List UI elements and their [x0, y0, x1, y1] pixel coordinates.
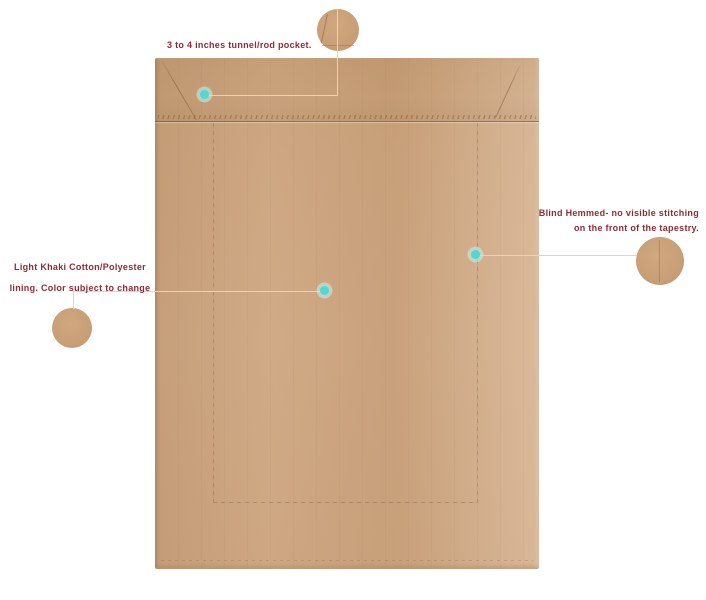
lining-left-seam [213, 123, 214, 502]
blind-hem-label-line2: on the front of the tapestry. [539, 221, 699, 236]
rod-pocket-label-text: 3 to 4 inches tunnel/rod pocket. [167, 40, 312, 50]
pocket-zigzag-stitch [158, 115, 536, 119]
lining-bottom-seam [213, 502, 478, 503]
rod-pocket-detail-swatch [317, 9, 359, 51]
lining-label: Light Khaki Cotton/Polyester lining. Col… [4, 257, 156, 299]
tapestry-back-fabric [155, 58, 539, 569]
swatch-fold-crease [321, 14, 328, 44]
rod-pocket-panel [155, 58, 539, 122]
blind-hem-marker-dot [471, 250, 480, 259]
lining-right-seam [477, 123, 478, 502]
rod-pocket-leader-vertical [337, 9, 338, 95]
lining-label-line2: lining. Color subject to change [4, 278, 156, 299]
rod-pocket-marker-dot [200, 90, 209, 99]
lining-color-swatch [52, 308, 92, 348]
rod-pocket-leader-horizontal [205, 95, 338, 96]
lining-label-line1: Light Khaki Cotton/Polyester [4, 257, 156, 278]
blind-hem-detail-swatch [636, 237, 684, 285]
swatch-seam-band [322, 45, 354, 46]
blind-hem-leader-horizontal [476, 255, 637, 256]
product-annotation-canvas: 3 to 4 inches tunnel/rod pocket. Blind H… [0, 0, 706, 600]
bottom-hem-stitch [161, 560, 533, 561]
lining-marker-dot [320, 286, 329, 295]
blind-hem-label: Blind Hemmed- no visible stitching on th… [539, 206, 699, 236]
pocket-seam-line [155, 121, 539, 122]
rod-pocket-label: 3 to 4 inches tunnel/rod pocket. [167, 40, 312, 50]
blind-hem-label-line1: Blind Hemmed- no visible stitching [539, 206, 699, 221]
swatch-hem-seam [659, 240, 660, 282]
